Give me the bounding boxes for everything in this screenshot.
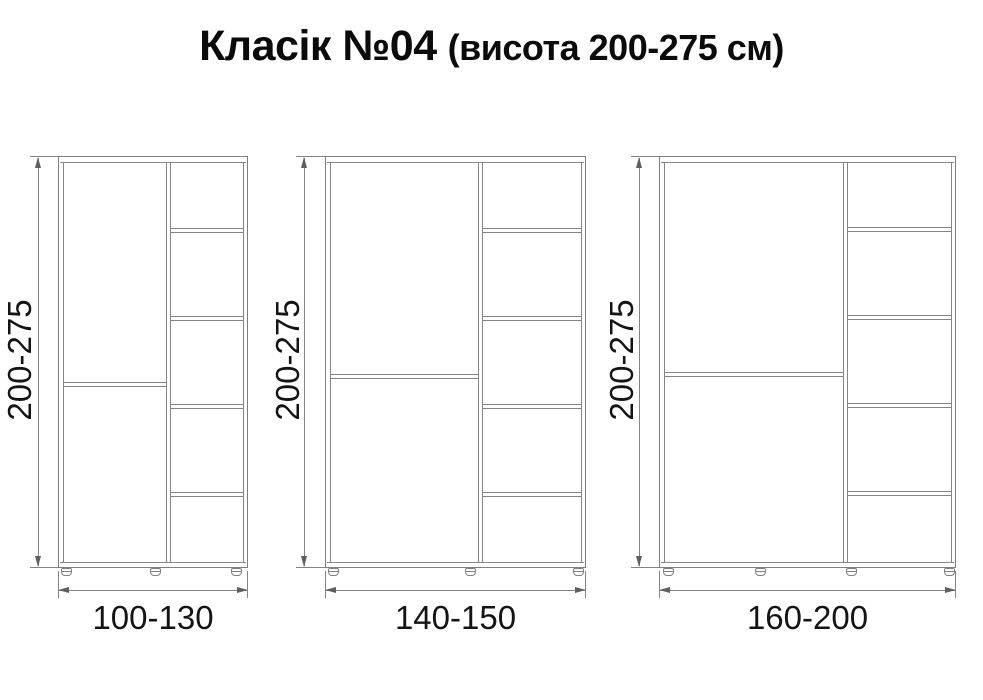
shelf-divider [171, 492, 243, 497]
width-dimension-line [659, 590, 956, 591]
foot [231, 568, 242, 576]
inner-panel-line-left [330, 162, 331, 562]
height-range-note: (висота 200-275 см) [448, 27, 784, 68]
dimension-arrow-left [58, 587, 69, 593]
dimension-arrow-left [325, 587, 336, 593]
dimension-arrow-down [301, 556, 307, 567]
extension-line-bottom [296, 567, 325, 568]
height-dimension-line [38, 158, 39, 566]
inner-panel-line-top [60, 162, 246, 163]
center-partition [843, 162, 848, 563]
inner-panel-line-top [327, 162, 584, 163]
shelf-divider [848, 491, 951, 496]
furniture-size-diagram: Класік №04(висота 200-275 см) 200-275 10… [0, 0, 983, 700]
cabinet-outline [659, 156, 956, 568]
extension-line-bottom [631, 567, 659, 568]
shelf-divider [483, 228, 581, 233]
door-split-line [665, 372, 843, 377]
shelf-divider [171, 228, 243, 233]
foot [465, 568, 476, 576]
extension-line-bottom [30, 567, 58, 568]
inner-panel-line-left [664, 162, 665, 562]
foot [663, 568, 674, 576]
foot [755, 568, 766, 576]
shelf-divider [848, 227, 951, 232]
width-dimension-label: 140-150 [325, 600, 586, 636]
foot [944, 568, 955, 576]
page-title: Класік №04(висота 200-275 см) [0, 22, 983, 80]
inner-panel-line-right [951, 162, 952, 562]
center-partition [478, 162, 483, 563]
shelf-divider [483, 404, 581, 409]
inner-panel-line-top [661, 162, 954, 163]
extension-line-left [58, 571, 59, 598]
dimension-arrow-left [659, 587, 670, 593]
shelf-divider [171, 316, 243, 321]
inner-panel-line-right [243, 162, 244, 562]
inner-panel-line-bottom [327, 562, 584, 563]
shelf-divider [848, 315, 951, 320]
foot [846, 568, 857, 576]
door-split-line [331, 374, 478, 379]
extension-line-right [955, 571, 956, 598]
dimension-arrow-down [35, 556, 41, 567]
extension-line-left [659, 571, 660, 598]
center-partition [166, 162, 171, 563]
dimension-arrow-down [636, 556, 642, 567]
inner-panel-line-bottom [661, 562, 954, 563]
extension-line-top [296, 156, 325, 157]
width-dimension-line [58, 590, 248, 591]
width-dimension-label: 100-130 [58, 600, 248, 636]
cabinet-outline [325, 156, 586, 568]
height-dimension-label: 200-275 [270, 285, 306, 435]
extension-line-top [631, 156, 659, 157]
shelf-divider [483, 492, 581, 497]
height-dimension-label: 200-275 [604, 285, 640, 435]
product-name: Класік №04 [199, 22, 437, 70]
extension-line-right [585, 571, 586, 598]
inner-panel-line-right [581, 162, 582, 562]
extension-line-top [30, 156, 58, 157]
foot [61, 568, 72, 576]
door-split-line [64, 382, 166, 387]
dimension-arrow-up [35, 157, 41, 168]
inner-panel-line-left [63, 162, 64, 562]
shelf-divider [171, 404, 243, 409]
height-dimension-label: 200-275 [2, 285, 38, 435]
extension-line-right [247, 571, 248, 598]
shelf-divider [848, 403, 951, 408]
foot [150, 568, 161, 576]
dimension-arrow-up [301, 157, 307, 168]
cabinet-outline [58, 156, 248, 568]
width-dimension-label: 160-200 [659, 600, 956, 636]
extension-line-left [325, 571, 326, 598]
shelf-divider [483, 316, 581, 321]
dimension-arrow-up [636, 157, 642, 168]
foot [573, 568, 584, 576]
inner-panel-line-bottom [60, 562, 246, 563]
width-dimension-line [325, 590, 586, 591]
foot [328, 568, 339, 576]
